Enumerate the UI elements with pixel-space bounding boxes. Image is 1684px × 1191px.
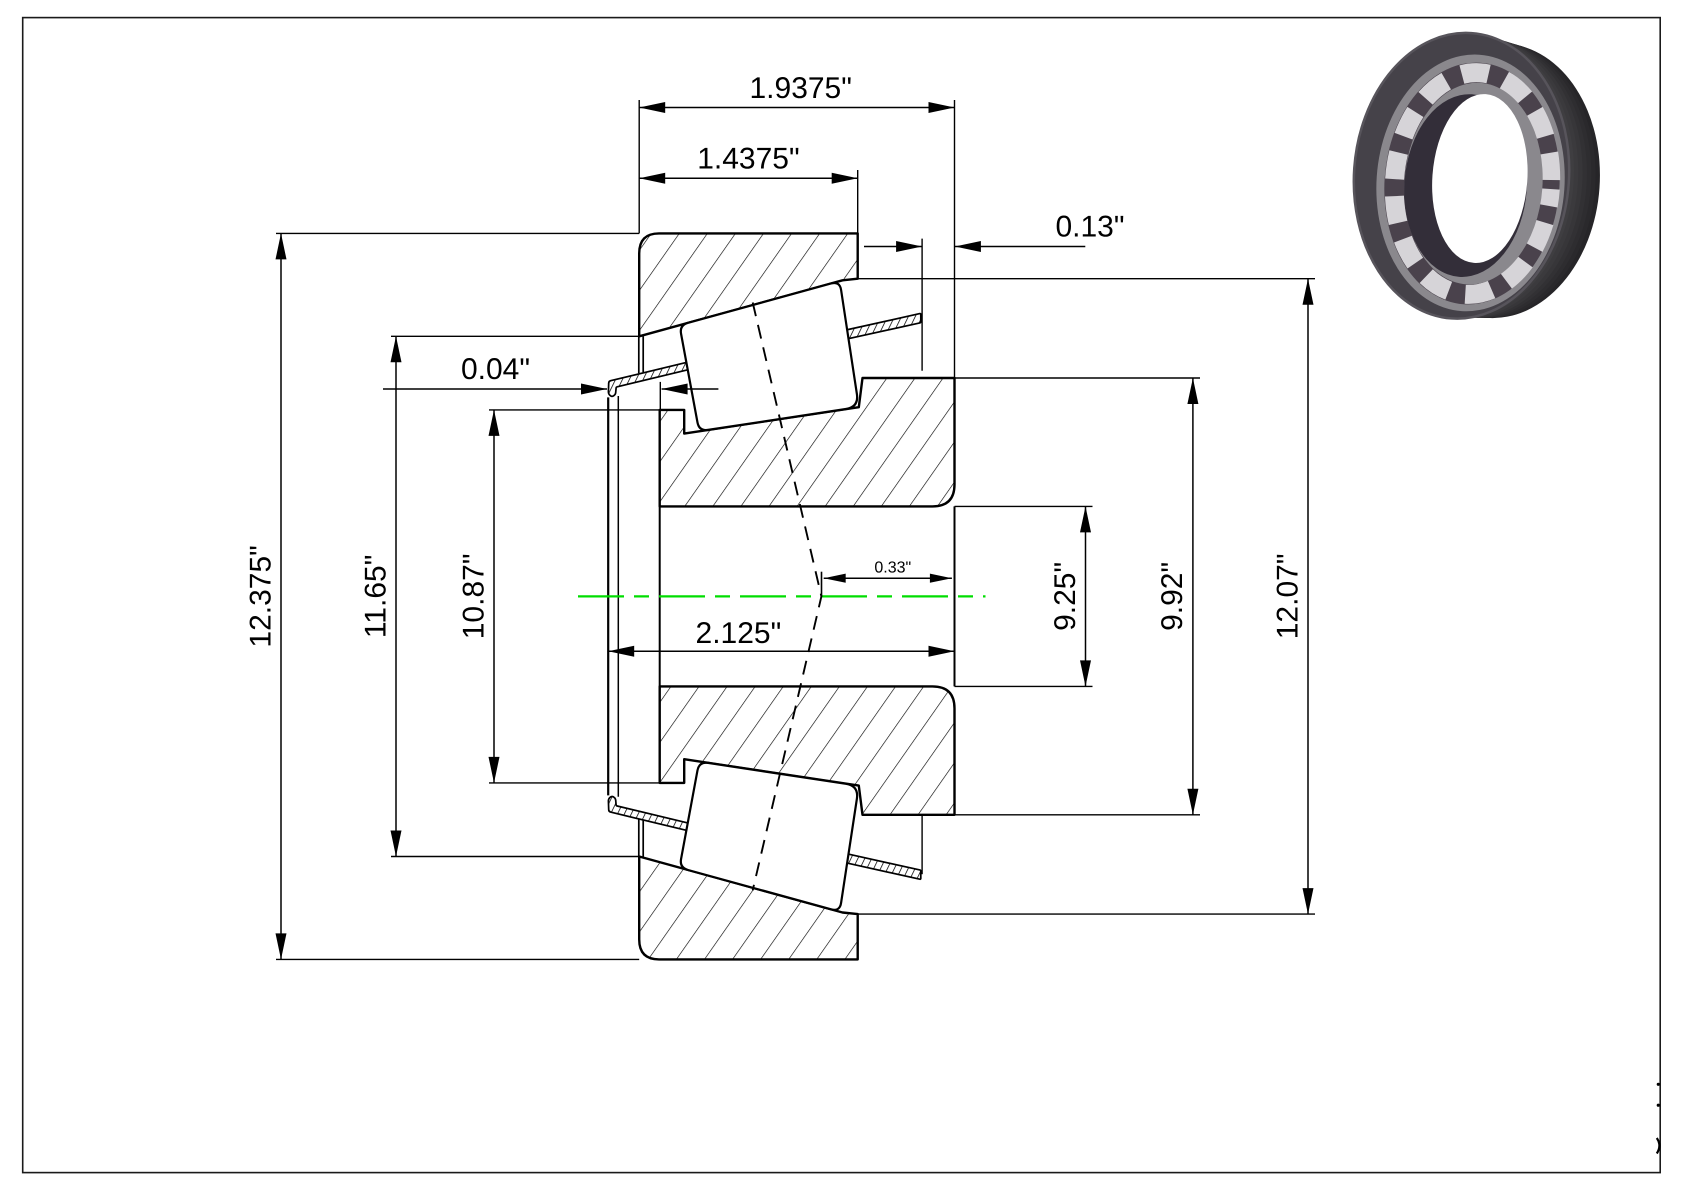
svg-text:1.4375": 1.4375" — [697, 142, 799, 175]
svg-text:0.33": 0.33" — [874, 560, 911, 577]
svg-text:9.92": 9.92" — [1156, 562, 1189, 631]
svg-text:1.9375": 1.9375" — [749, 72, 851, 105]
svg-text:2.125": 2.125" — [696, 617, 782, 650]
svg-text:12.375": 12.375" — [244, 545, 277, 647]
svg-text:0.04": 0.04" — [461, 353, 530, 386]
svg-text:11.65": 11.65" — [359, 555, 392, 639]
svg-text:9.25": 9.25" — [1049, 562, 1082, 631]
svg-text:12.07": 12.07" — [1271, 554, 1304, 640]
svg-text:10.87": 10.87" — [457, 554, 490, 640]
svg-text:0.13": 0.13" — [1055, 211, 1124, 244]
